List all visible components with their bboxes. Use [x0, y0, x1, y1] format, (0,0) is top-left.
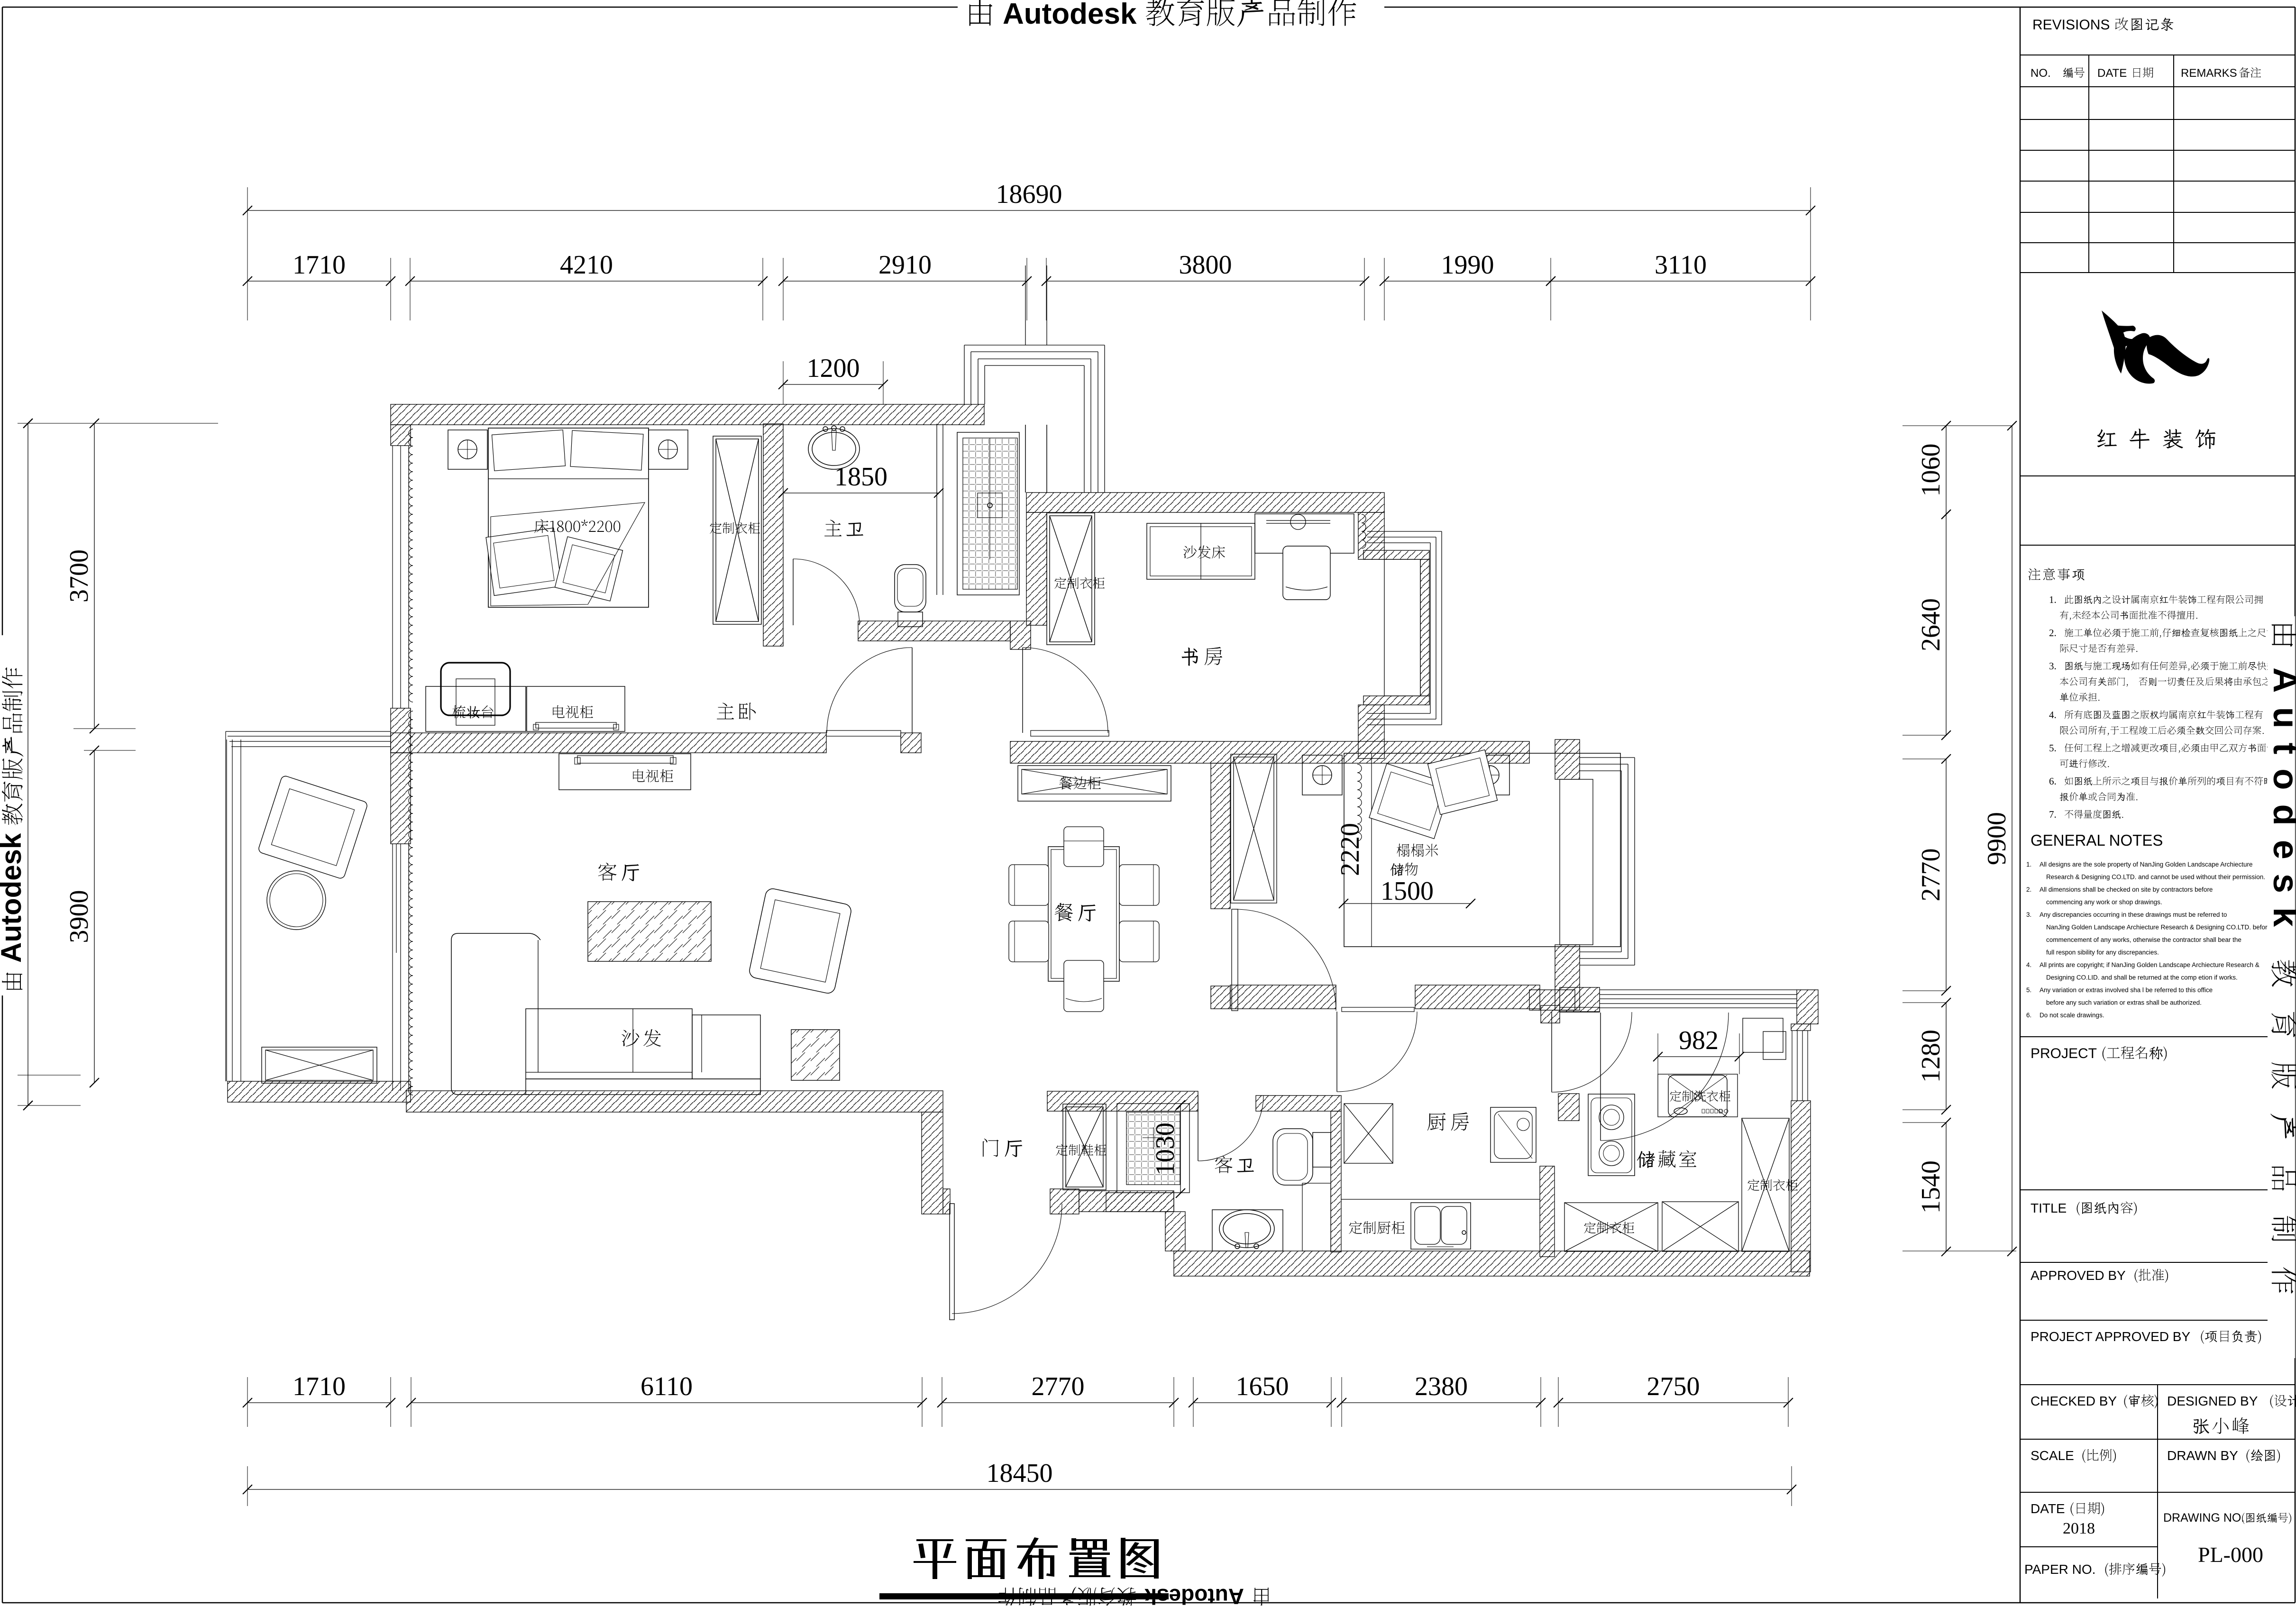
svg-text:REMARKS: REMARKS — [2181, 67, 2237, 80]
svg-text:6.: 6. — [2049, 776, 2057, 787]
svg-text:4.: 4. — [2049, 709, 2057, 721]
svg-text:982: 982 — [1679, 1026, 1719, 1055]
svg-text:5.: 5. — [2049, 742, 2057, 754]
svg-text:6110: 6110 — [640, 1372, 693, 1401]
svg-text:1200: 1200 — [807, 354, 860, 383]
svg-text:2770: 2770 — [1916, 849, 1946, 902]
svg-text:PL-000: PL-000 — [2198, 1543, 2263, 1567]
svg-text:1030: 1030 — [1151, 1123, 1180, 1176]
svg-text:18450: 18450 — [987, 1459, 1053, 1488]
svg-text:Autodesk: Autodesk — [1003, 0, 1137, 30]
svg-text:REVISIONS: REVISIONS — [2032, 17, 2110, 33]
svg-text:PAPER NO.: PAPER NO. — [2024, 1562, 2095, 1577]
svg-text:full respon sibility for any: full respon sibility for any discrepanci… — [2046, 949, 2159, 956]
svg-text:All prints are copyright; if N: All prints are copyright; if NanJing Gol… — [2040, 961, 2259, 968]
svg-text:DESIGNED BY: DESIGNED BY — [2167, 1394, 2258, 1408]
svg-text:PROJECT APPROVED BY: PROJECT APPROVED BY — [2031, 1329, 2190, 1344]
svg-text:4.: 4. — [2026, 961, 2031, 968]
svg-text:3.: 3. — [2026, 911, 2031, 918]
svg-text:NO.: NO. — [2031, 67, 2051, 80]
svg-text:3.: 3. — [2049, 660, 2057, 672]
svg-text:2910: 2910 — [878, 250, 932, 280]
svg-text:3700: 3700 — [64, 549, 94, 603]
svg-text:18690: 18690 — [996, 180, 1062, 209]
svg-text:Autodesk: Autodesk — [2266, 667, 2296, 941]
svg-text:1710: 1710 — [293, 1372, 346, 1401]
svg-text:4210: 4210 — [560, 250, 613, 280]
svg-text:3800: 3800 — [1179, 250, 1232, 280]
svg-text:3900: 3900 — [64, 890, 94, 943]
svg-text:All dimensions shall be checke: All dimensions shall be checked on site … — [2040, 886, 2213, 893]
svg-text:2220: 2220 — [1336, 823, 1365, 876]
svg-text:Do not scale drawings.: Do not scale drawings. — [2040, 1012, 2104, 1019]
svg-text:2770: 2770 — [1032, 1372, 1085, 1401]
svg-text:Research & Designing CO.LTD. a: Research & Designing CO.LTD. and cannot … — [2046, 874, 2265, 881]
svg-text:2750: 2750 — [1647, 1372, 1700, 1401]
svg-text:1280: 1280 — [1916, 1030, 1946, 1083]
svg-text:before any such variation or e: before any such variation or extras shal… — [2046, 999, 2202, 1006]
svg-text:All designs are the sole prope: All designs are the sole property of Nan… — [2040, 861, 2253, 868]
svg-text:6.: 6. — [2026, 1012, 2031, 1019]
svg-text:1650: 1650 — [1236, 1372, 1289, 1401]
svg-text:DRAWN BY: DRAWN BY — [2167, 1448, 2238, 1463]
svg-text:3110: 3110 — [1655, 250, 1707, 280]
svg-text:DATE: DATE — [2031, 1501, 2065, 1516]
svg-text:1710: 1710 — [293, 250, 346, 280]
svg-text:TITLE: TITLE — [2031, 1201, 2067, 1215]
svg-text:1990: 1990 — [1441, 250, 1494, 280]
svg-text:1500: 1500 — [1381, 877, 1434, 906]
svg-text:1060: 1060 — [1916, 444, 1946, 497]
svg-text:7.: 7. — [2049, 809, 2057, 820]
svg-text:APPROVED BY: APPROVED BY — [2031, 1268, 2126, 1283]
svg-text:1540: 1540 — [1916, 1160, 1946, 1214]
svg-text:PROJECT: PROJECT — [2031, 1046, 2097, 1061]
svg-text:DRAWING NO.: DRAWING NO. — [2163, 1511, 2244, 1525]
svg-text:1.: 1. — [2049, 594, 2057, 605]
svg-text:2018: 2018 — [2063, 1520, 2095, 1537]
svg-text:Designing CO.LID. and shall be: Designing CO.LID. and shall be returned … — [2046, 974, 2238, 981]
svg-text:5.: 5. — [2026, 986, 2031, 994]
svg-text:CHECKED BY: CHECKED BY — [2031, 1394, 2117, 1408]
svg-text:Autodesk: Autodesk — [0, 833, 27, 963]
svg-text:2.: 2. — [2049, 627, 2057, 639]
svg-text:SCALE: SCALE — [2031, 1448, 2074, 1463]
svg-text:commencing any work or shop dr: commencing any work or shop drawings. — [2046, 899, 2162, 906]
svg-text:Any discrepancies occurring in: Any discrepancies occurring in these dra… — [2040, 911, 2227, 918]
svg-text:commencement of any works, ot: commencement of any works, otherwise the… — [2046, 936, 2241, 943]
svg-text:GENERAL NOTES: GENERAL NOTES — [2031, 831, 2163, 849]
svg-text:1850: 1850 — [834, 462, 887, 492]
svg-text:9900: 9900 — [1982, 812, 2012, 865]
svg-text:1.: 1. — [2026, 861, 2031, 868]
svg-text:2640: 2640 — [1916, 598, 1946, 651]
svg-text:NanJing Golden Landscape Archi: NanJing Golden Landscape Archiecture Res… — [2046, 924, 2271, 931]
svg-text:2380: 2380 — [1415, 1372, 1468, 1401]
svg-text:Any variation or extras involv: Any variation or extras involved sha l b… — [2040, 986, 2213, 994]
svg-text:DATE: DATE — [2097, 67, 2127, 80]
svg-text:2.: 2. — [2026, 886, 2031, 893]
